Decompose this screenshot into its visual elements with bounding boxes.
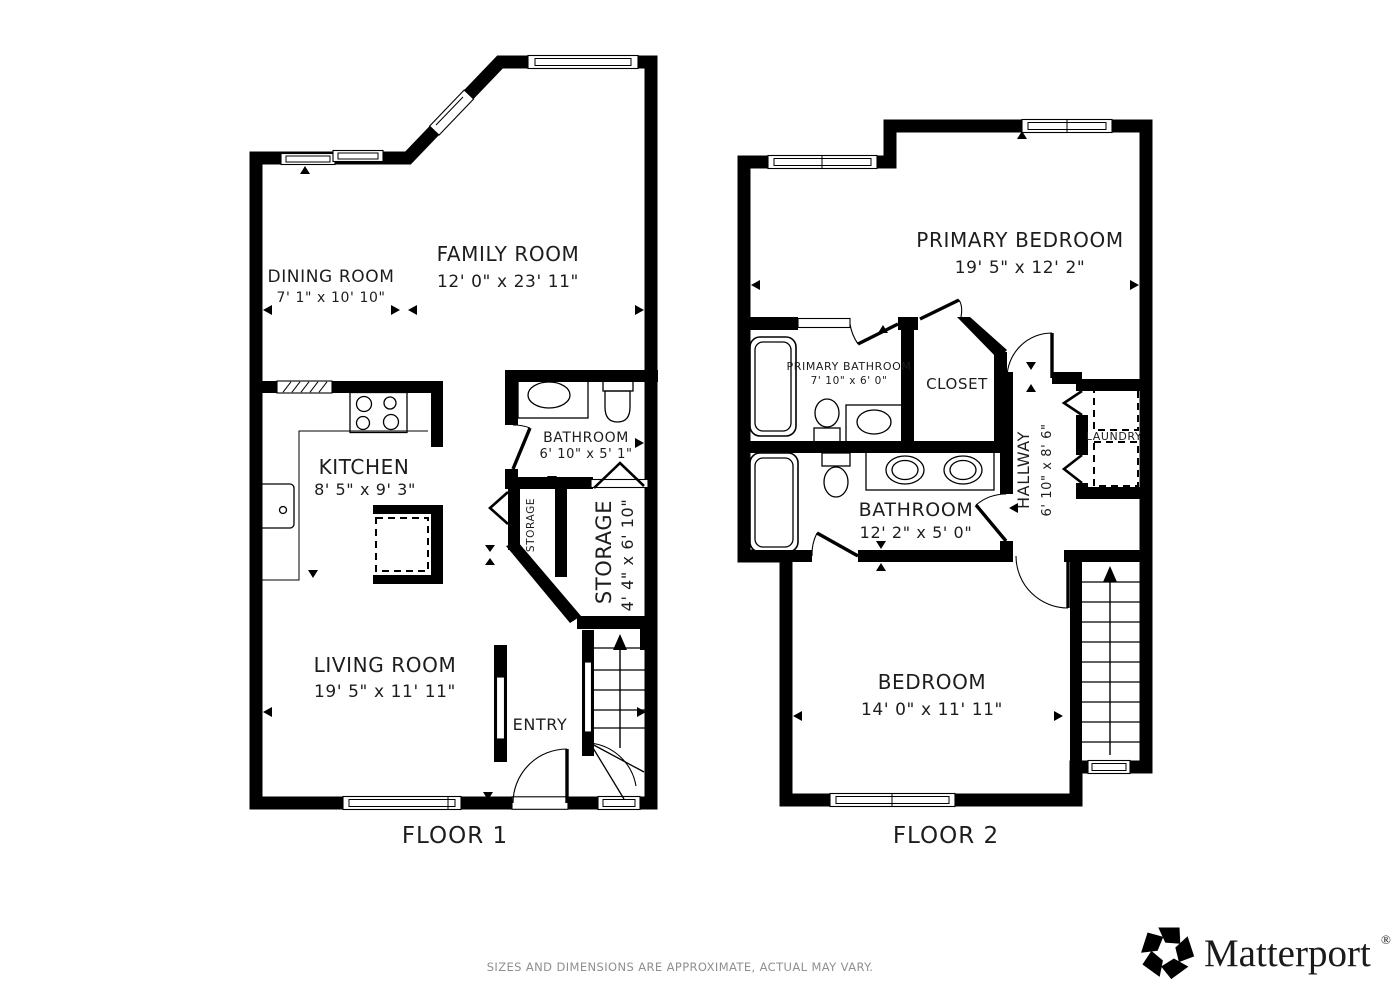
matterport-logo: Matterport ® xyxy=(1138,925,1391,981)
hallway-label: HALLWAY xyxy=(1014,431,1033,509)
floorplan-page: DINING ROOM 7' 1" x 10' 10" FAMILY ROOM … xyxy=(0,0,1400,989)
bathroom1-dims: 6' 10" x 5' 1" xyxy=(539,447,632,462)
living-room-label: LIVING ROOM xyxy=(314,653,457,677)
kitchen-dims: 8' 5" x 9' 3" xyxy=(314,480,416,499)
family-room-label: FAMILY ROOM xyxy=(437,242,580,266)
floor2-title: FLOOR 2 xyxy=(893,823,999,849)
dining-room-dims: 7' 1" x 10' 10" xyxy=(276,290,385,306)
living-room-dims: 19' 5" x 11' 11" xyxy=(314,682,456,702)
primary-bathroom-dims: 7' 10" x 6' 0" xyxy=(811,375,888,387)
primary-bathroom-label: PRIMARY BATHROOM xyxy=(787,360,912,373)
matterport-wordmark: Matterport xyxy=(1204,932,1371,975)
family-room-dims: 12' 0" x 23' 11" xyxy=(437,272,579,292)
kitchen-label: KITCHEN xyxy=(319,455,410,479)
bedroom-dims: 14' 0" x 11' 11" xyxy=(861,700,1003,720)
laundry-label: LAUNDRY xyxy=(1086,430,1143,443)
bathroom2-label: BATHROOM xyxy=(859,499,974,521)
primary-bathtub xyxy=(750,337,796,436)
floorplan-svg: DINING ROOM 7' 1" x 10' 10" FAMILY ROOM … xyxy=(0,0,1400,989)
storage-dims: 4' 4" x 6' 10" xyxy=(618,499,637,612)
closet-label: CLOSET xyxy=(926,375,988,393)
bathroom1-label: BATHROOM xyxy=(543,430,629,446)
storage-label: STORAGE xyxy=(592,500,616,604)
matterport-pinwheel-icon xyxy=(1138,925,1194,981)
bedroom-label: BEDROOM xyxy=(878,670,987,694)
registered-trademark-symbol: ® xyxy=(1381,932,1391,947)
floor1-title: FLOOR 1 xyxy=(402,823,508,849)
dining-room-label: DINING ROOM xyxy=(268,267,395,287)
hallway-dims: 6' 10" x 8' 6" xyxy=(1040,423,1055,516)
floor2-plan: PRIMARY BEDROOM 19' 5" x 12' 2" PRIMARY … xyxy=(744,120,1152,850)
floor1-plan: DINING ROOM 7' 1" x 10' 10" FAMILY ROOM … xyxy=(252,56,658,850)
primary-bedroom-dims: 19' 5" x 12' 2" xyxy=(955,258,1086,278)
disclaimer-text: SIZES AND DIMENSIONS ARE APPROXIMATE, AC… xyxy=(487,960,874,974)
primary-bedroom-label: PRIMARY BEDROOM xyxy=(916,228,1123,252)
bathroom2-dims: 12' 2" x 5' 0" xyxy=(860,523,973,542)
bathtub xyxy=(750,453,798,552)
entry-label: ENTRY xyxy=(513,715,568,734)
small-storage-label: STORAGE xyxy=(525,498,537,552)
